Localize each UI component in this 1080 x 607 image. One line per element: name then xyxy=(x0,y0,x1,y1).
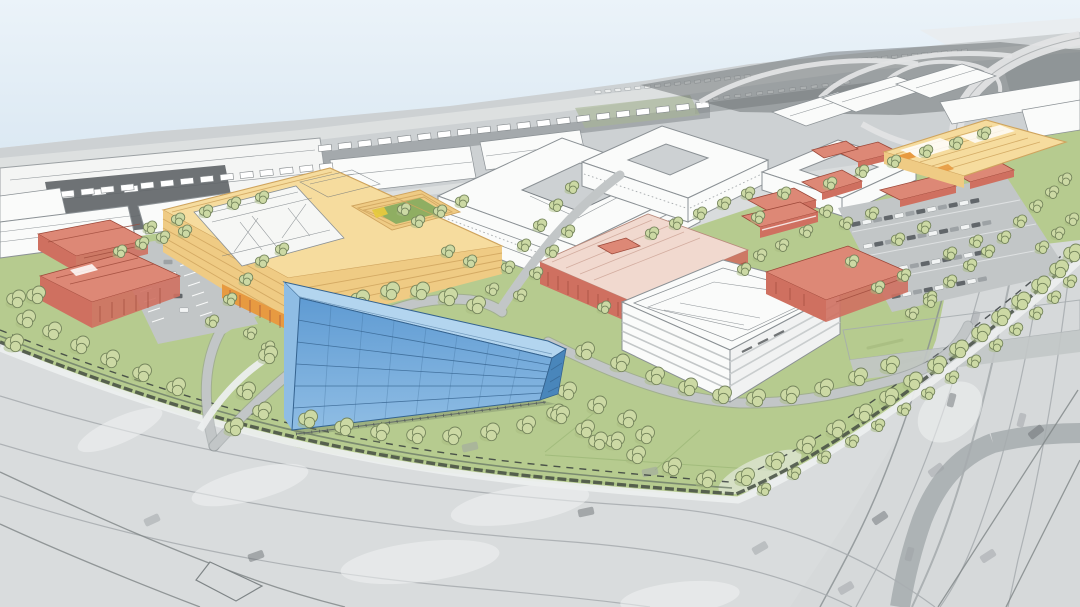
masterplan-rendering: Campus master plan — aerial perspective … xyxy=(0,0,1080,607)
rendering-canvas: Campus master plan — aerial perspective … xyxy=(0,0,1080,607)
